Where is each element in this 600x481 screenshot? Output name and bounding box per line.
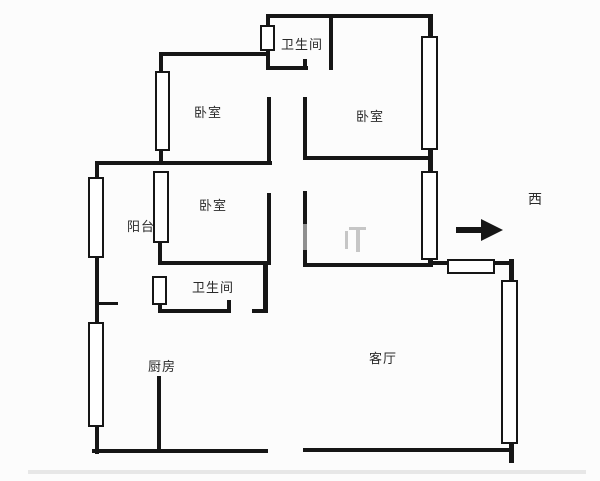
faint-bottom-band — [28, 470, 586, 474]
wall-bottom-left — [92, 449, 268, 453]
window-kitchen-left — [88, 322, 104, 427]
window-living-top — [447, 259, 495, 274]
wall-bathroom2-bottom — [158, 309, 231, 313]
wall-balcony-divider-lower — [158, 241, 162, 263]
wall-bathroom1-door-tick — [303, 59, 307, 70]
room-label-bedroom-top-right: 卧室 — [356, 109, 384, 124]
wall-left-b — [95, 256, 99, 324]
wall-hall-bottom — [303, 263, 433, 267]
window-hall-right — [421, 171, 438, 260]
faint-watermark-mark-3 — [345, 231, 348, 249]
door-gray-segment — [303, 224, 307, 250]
window-bedroom3-right — [421, 36, 438, 150]
compass-west-label: 西 — [528, 192, 543, 207]
wall-bedroom2-right — [267, 193, 271, 265]
room-label-living-room: 客厅 — [369, 351, 397, 366]
window-bedroom1-left — [155, 71, 170, 151]
wall-bedroom3-bottom — [303, 156, 433, 160]
room-label-balcony: 阳台 — [127, 219, 155, 234]
room-label-bathroom-top: 卫生间 — [281, 37, 323, 52]
west-arrow-head — [481, 219, 503, 241]
room-label-bathroom-middle: 卫生间 — [192, 280, 234, 295]
room-label-bedroom-middle: 卧室 — [199, 198, 227, 213]
wall-bathroom2-door-tick — [227, 300, 231, 312]
wall-bathroom1-bottom — [266, 66, 308, 70]
wall-top-outer — [266, 14, 433, 18]
wall-bedroom1-top — [160, 52, 270, 56]
wall-balcony-kitchen-tick — [95, 302, 118, 305]
wall-bathroom2-right — [263, 261, 268, 313]
window-living-right — [501, 280, 518, 444]
wall-living-right-b — [509, 441, 514, 463]
wall-hall-right-upper — [303, 97, 307, 160]
room-label-bedroom-top-left: 卧室 — [194, 105, 222, 120]
wall-hall-left-upper — [267, 97, 271, 165]
wall-living-top-a — [428, 261, 449, 265]
wall-middle-long — [95, 161, 272, 165]
window-bathroom1 — [260, 25, 275, 51]
wall-bathroom1-right — [329, 16, 333, 70]
floorplan: 卫生间 卧室 卧室 卧室 阳台 卫生间 厨房 客厅 西 — [0, 0, 600, 481]
window-bathroom2 — [152, 276, 167, 305]
west-arrow-shaft — [456, 227, 484, 233]
wall-bottom-right — [303, 448, 514, 452]
wall-bathroom2-top — [158, 261, 269, 265]
wall-kitchen-divider — [157, 376, 161, 452]
window-balcony-left — [88, 177, 104, 258]
room-label-kitchen: 厨房 — [148, 359, 176, 374]
window-balcony-right — [153, 171, 169, 243]
faint-watermark-mark-2 — [356, 230, 360, 252]
